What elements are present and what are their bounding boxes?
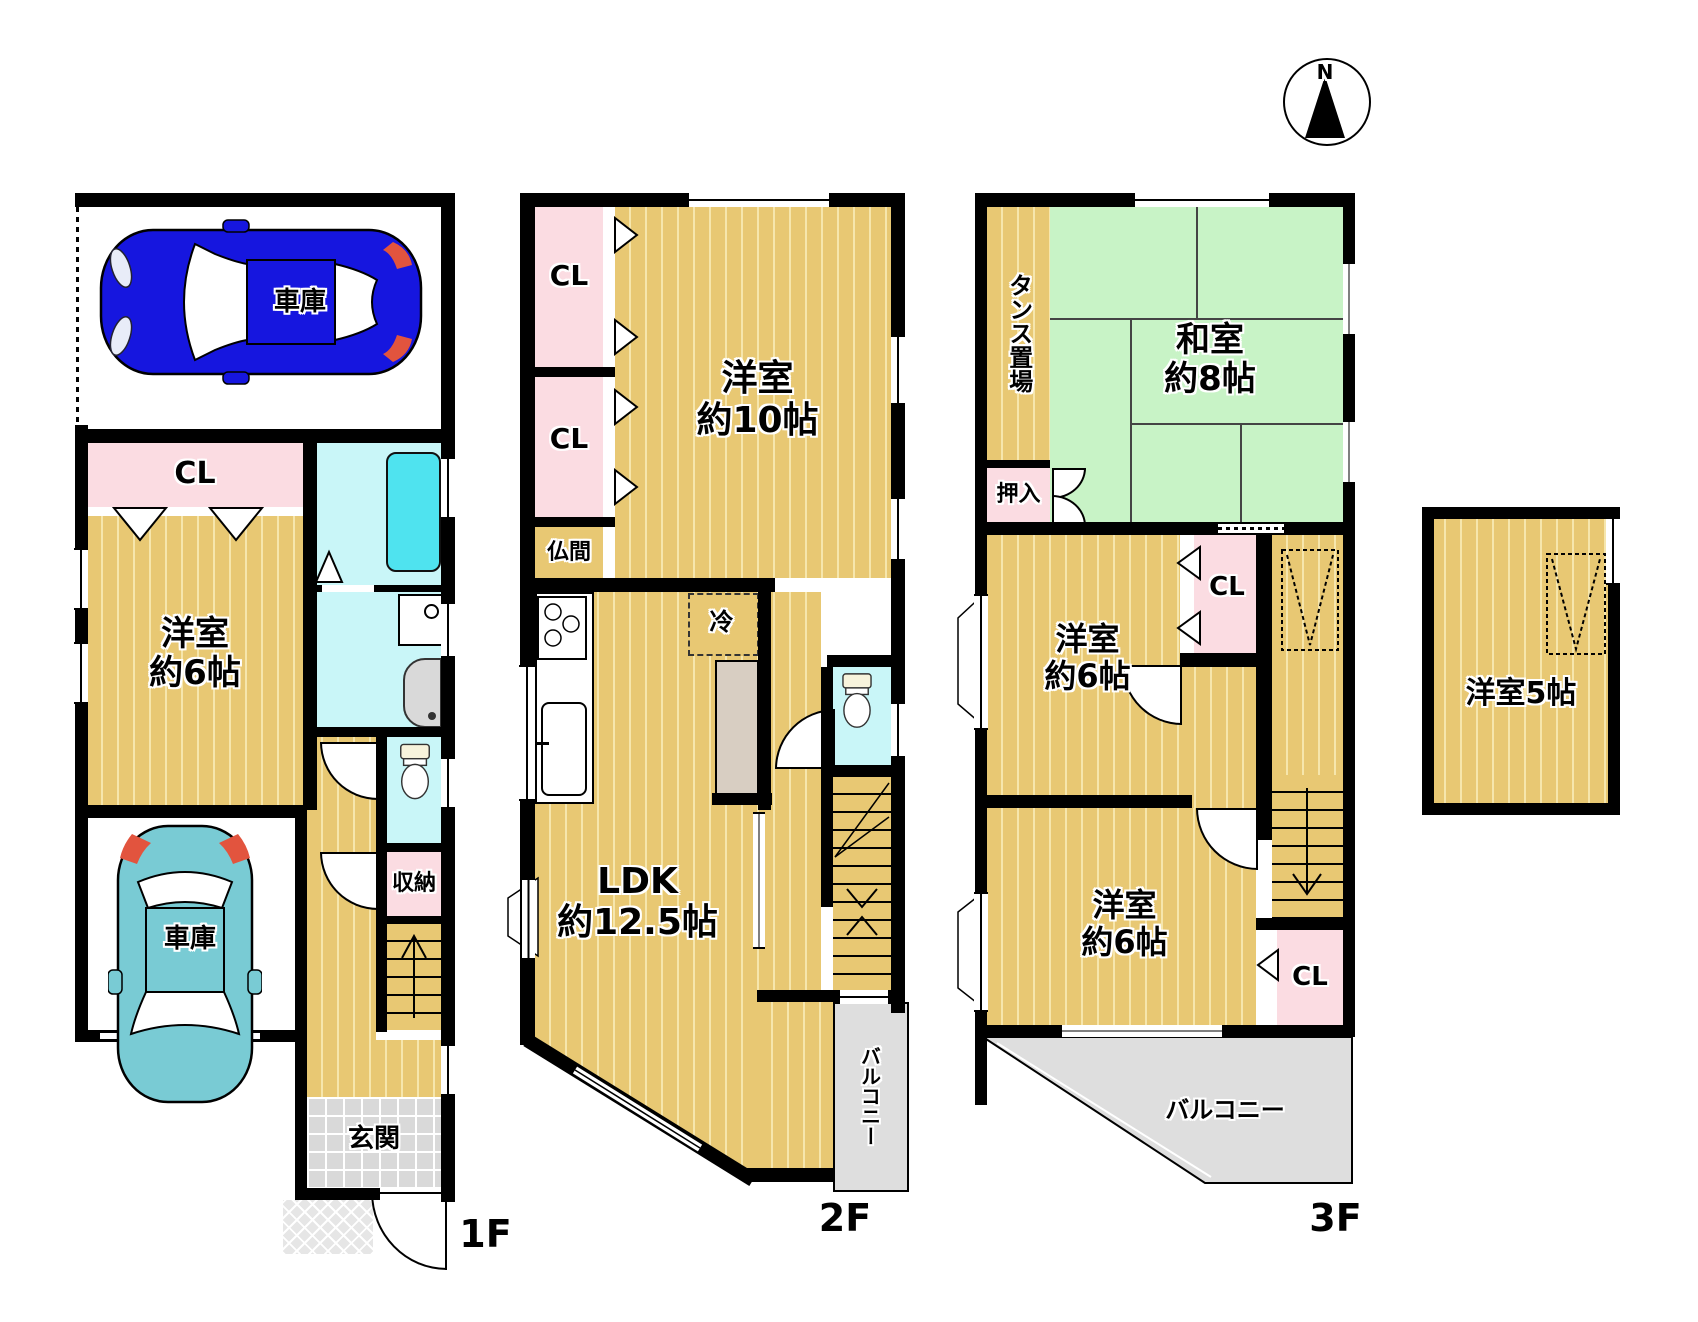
f1-window — [441, 757, 455, 809]
f2-wall — [891, 193, 905, 1013]
f3-balcony-label: バルコニー — [1140, 1092, 1310, 1130]
f2-fridge-label: 冷 — [688, 593, 755, 652]
f1-car-teal-icon — [108, 820, 262, 1108]
f1-western-room-label: 洋室 約6帖 — [87, 608, 303, 700]
f1-closet-fold-icon — [112, 506, 168, 542]
f2-ldk-sliding-door — [753, 812, 765, 949]
f2-closet-fold-icon — [613, 318, 639, 356]
f1-wall — [295, 1040, 307, 1200]
f2-wall — [535, 367, 615, 377]
f1-wall — [75, 429, 455, 443]
f2-closet-fold-icon — [613, 468, 639, 506]
f2-wall — [712, 793, 772, 805]
f3-tatami-line — [1240, 425, 1242, 522]
f3-tatami-line — [1196, 207, 1198, 320]
f3-balcony-window — [1060, 1025, 1224, 1037]
compass-north-label: N — [1285, 59, 1365, 85]
annex-walls — [1422, 507, 1620, 815]
f2-diagonal-wall — [510, 1020, 770, 1190]
f3-oshiire-label: 押入 — [987, 474, 1050, 516]
f1-window — [441, 602, 455, 658]
f2-window — [891, 702, 905, 758]
f1-closet-label: CL — [110, 453, 280, 495]
f3-wall — [1256, 918, 1355, 930]
f2-window — [891, 335, 905, 405]
f3-wall — [987, 460, 1050, 468]
f1-wash-basin — [403, 658, 442, 728]
f2-window — [687, 193, 831, 207]
f3-tansu-label: タンス置場 — [992, 218, 1044, 448]
annex-room-label: 洋室5帖 — [1434, 672, 1608, 716]
f2-window — [891, 497, 905, 561]
f2-floor-label: 2F — [790, 1196, 900, 1242]
f2-stairs-marks — [833, 777, 891, 992]
f3-western-room-upper-label: 洋室 約6帖 — [985, 612, 1190, 704]
f3-window — [1133, 193, 1271, 207]
f2-closet-lower-label: CL — [535, 418, 603, 460]
f2-kitchen-counter — [715, 660, 759, 800]
f1-entrance-door-arc — [371, 1192, 447, 1270]
f1-window — [441, 1044, 455, 1096]
f1-window — [74, 548, 88, 610]
f1-wall — [75, 193, 455, 207]
f2-wall — [535, 517, 615, 527]
f1-wall — [376, 843, 441, 852]
f3-dotted-opening — [1218, 524, 1284, 533]
f3-wall — [975, 522, 1355, 535]
f3-loft-ladder-icon — [1280, 548, 1340, 652]
f2-balcony-door — [838, 990, 890, 1004]
f1-garage-open-edge — [76, 207, 83, 429]
f2-wall — [827, 655, 891, 667]
f3-wall — [987, 795, 1192, 808]
f1-storage-label: 収納 — [385, 864, 443, 904]
f1-wall — [295, 1188, 380, 1200]
annex-window — [1606, 517, 1620, 585]
f2-wall — [520, 578, 775, 592]
f1-window — [74, 642, 88, 704]
f1-floor-label: 1F — [438, 1212, 533, 1258]
f2-wall — [821, 667, 833, 907]
f3-tatami-line — [1130, 423, 1343, 425]
f2-window — [519, 665, 535, 801]
f2-closet-fold-icon — [613, 388, 639, 426]
f2-closet-fold-icon — [613, 216, 639, 254]
f1-entry-hall-floor — [307, 1040, 441, 1097]
f2-stove-icon — [537, 596, 587, 660]
f2-wall — [827, 765, 891, 777]
f1-stairs-up-arrow — [397, 928, 431, 1026]
f2-toilet-icon — [838, 672, 876, 730]
f1-porch — [283, 1200, 373, 1254]
f1-basin-drain — [428, 712, 436, 720]
f2-wall — [758, 578, 771, 810]
f3-floor-label: 3F — [1283, 1196, 1388, 1242]
f1-bath-door-fold-icon — [314, 548, 344, 584]
f1-garage-upper-label: 車庫 — [130, 283, 470, 323]
f1-bathtub — [386, 452, 441, 572]
f1-garage-lower-label: 車庫 — [120, 920, 260, 960]
f1-wall — [295, 805, 307, 1040]
f2-sink — [541, 702, 587, 796]
f2-western-room-label: 洋室 約10帖 — [650, 352, 865, 447]
f3-window — [1343, 262, 1355, 336]
f3-closet-a-label: CL — [1194, 568, 1260, 608]
f3-wall — [1180, 653, 1270, 667]
f3-stairs-down-arrow — [1282, 780, 1332, 912]
f1-entrance-label: 玄関 — [307, 1118, 441, 1162]
f3-japanese-room-label: 和室 約8帖 — [1110, 315, 1310, 405]
f2-ldk-label: LDK 約12.5帖 — [530, 852, 745, 952]
f1-bath-sliding-door — [322, 585, 374, 592]
f3-window — [974, 892, 988, 1012]
f2-faucet — [535, 742, 549, 745]
f2-balcony-label: バルコニー — [843, 1015, 895, 1177]
f1-wall — [376, 916, 441, 924]
f1-closet-fold-icon — [208, 506, 264, 542]
f1-wall — [303, 727, 441, 737]
f2-closet-upper-label: CL — [535, 255, 603, 297]
f3-western-room-lower-label: 洋室 約6帖 — [1022, 878, 1227, 970]
f1-wall — [75, 425, 88, 1042]
f1-vanity-bowl — [424, 604, 439, 619]
floorplan-image: N — [0, 0, 1698, 1322]
f3-closet-b-label: CL — [1277, 958, 1343, 998]
f1-wall — [303, 429, 317, 810]
f1-wall — [75, 805, 307, 818]
f1-window — [441, 457, 455, 519]
f2-butsuma-label: 仏間 — [535, 533, 603, 573]
f1-toilet-icon — [396, 742, 434, 802]
f1-vanity — [398, 594, 446, 646]
f3-window — [1343, 420, 1355, 484]
